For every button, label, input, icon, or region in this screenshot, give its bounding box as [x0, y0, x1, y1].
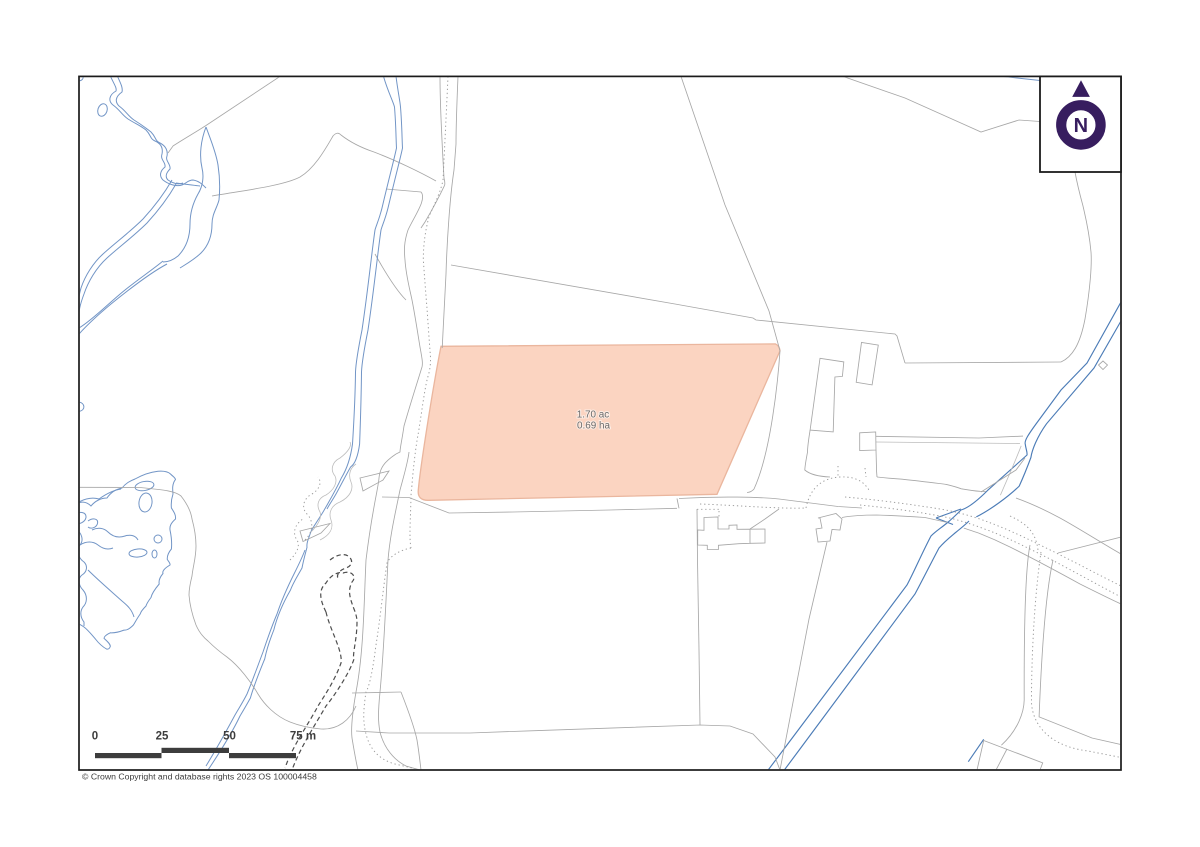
svg-text:50: 50: [223, 731, 236, 743]
svg-text:N: N: [1074, 115, 1088, 137]
svg-text:75 m: 75 m: [290, 731, 316, 743]
svg-text:0: 0: [92, 731, 98, 743]
svg-text:0.69 ha: 0.69 ha: [577, 420, 610, 431]
svg-text:25: 25: [156, 731, 169, 743]
svg-text:1.70 ac: 1.70 ac: [577, 410, 609, 421]
svg-text:© Crown Copyright and database: © Crown Copyright and database rights 20…: [82, 772, 317, 782]
